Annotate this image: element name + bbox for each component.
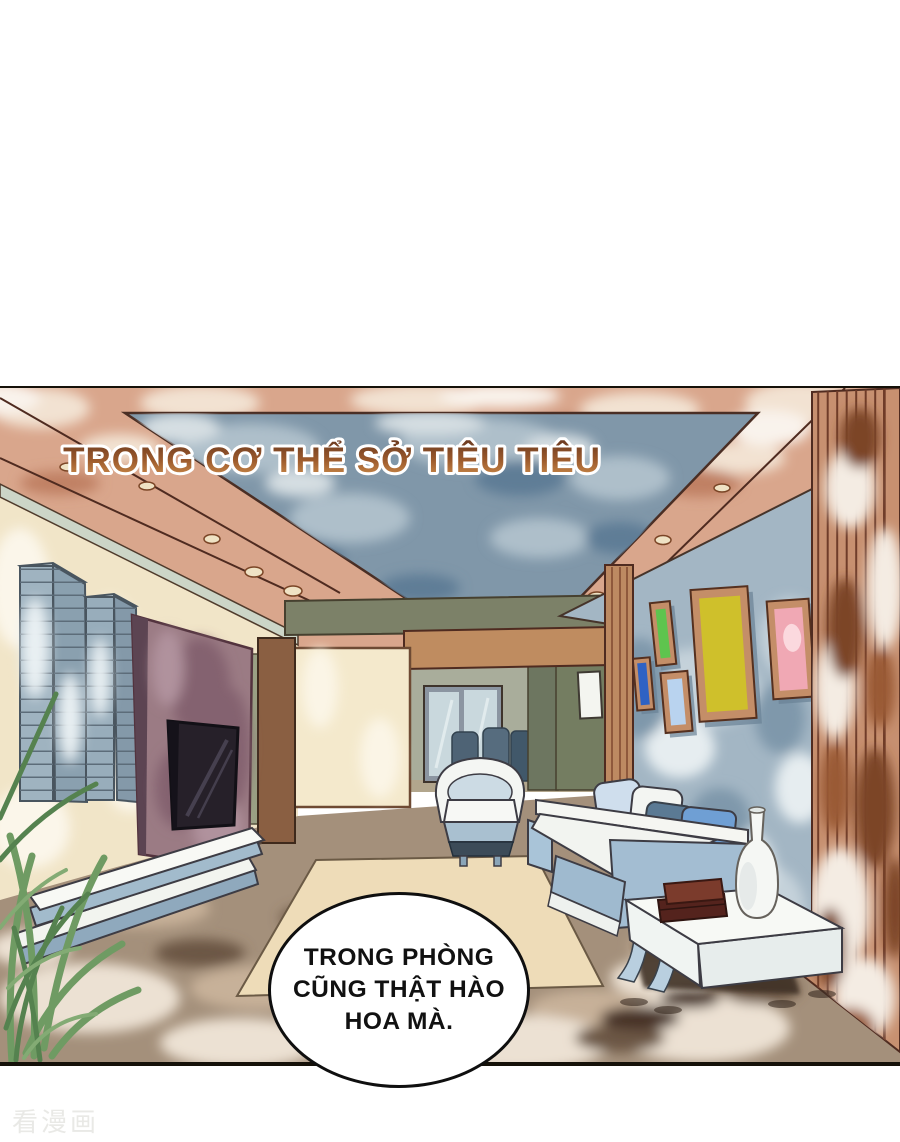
- doorway-pillar: [258, 638, 295, 843]
- tv-screen: [168, 721, 238, 829]
- tower-shelves: [20, 563, 138, 802]
- watermark-text: 看漫画: [12, 1102, 99, 1139]
- doorway-header-beam: [404, 627, 611, 669]
- caption-text: TRONG CƠ THỂ SỞ TIÊU TIÊU: [63, 440, 601, 480]
- books: [658, 879, 727, 922]
- frame-yellow: [690, 586, 761, 728]
- speech-line-2: CŨNG THẬT HÀO: [293, 974, 505, 1006]
- tv-wall-panel: [132, 615, 252, 870]
- speech-line-3: HOA MÀ.: [345, 1006, 454, 1038]
- comic-page: TRONG CƠ THỂ SỞ TIÊU TIÊU TRONG PHÒNG CŨ…: [0, 0, 900, 1142]
- cream-wall-panel: [293, 648, 410, 807]
- speech-bubble: TRONG PHÒNG CŨNG THẬT HÀO HOA MÀ.: [268, 892, 530, 1088]
- frame-light-blue: [660, 671, 697, 738]
- speech-line-1: TRONG PHÒNG: [304, 942, 495, 974]
- small-white-frame: [578, 671, 602, 718]
